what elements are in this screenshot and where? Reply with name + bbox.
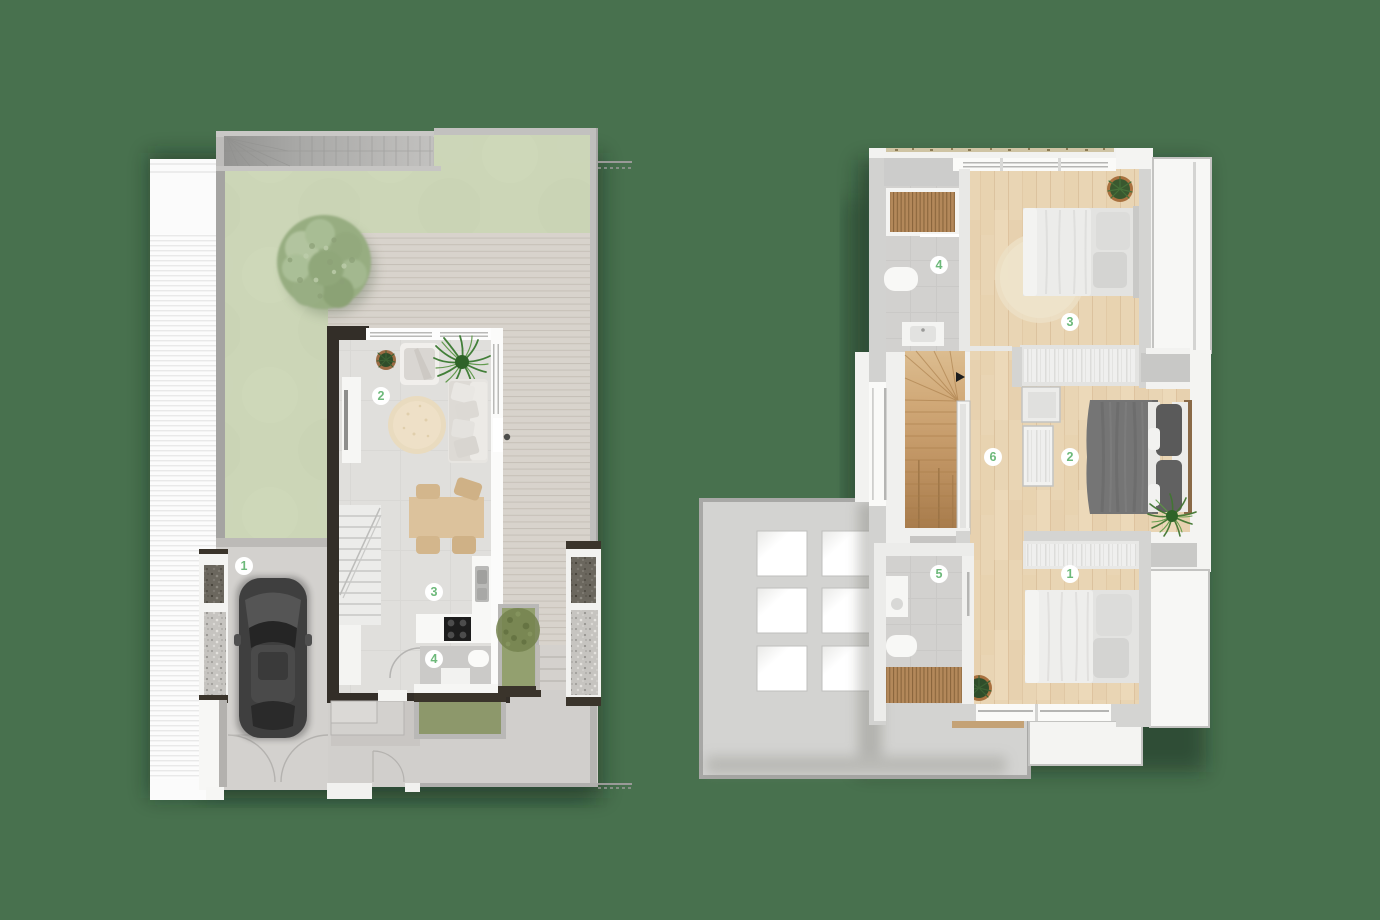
svg-text:2: 2 [1067, 450, 1074, 464]
svg-text:4: 4 [431, 652, 438, 666]
svg-text:1: 1 [241, 559, 248, 573]
svg-text:3: 3 [1067, 315, 1074, 329]
svg-text:2: 2 [378, 389, 385, 403]
svg-text:1: 1 [1067, 567, 1074, 581]
svg-text:6: 6 [990, 450, 997, 464]
svg-text:4: 4 [936, 258, 943, 272]
svg-text:3: 3 [431, 585, 438, 599]
svg-text:5: 5 [936, 567, 943, 581]
